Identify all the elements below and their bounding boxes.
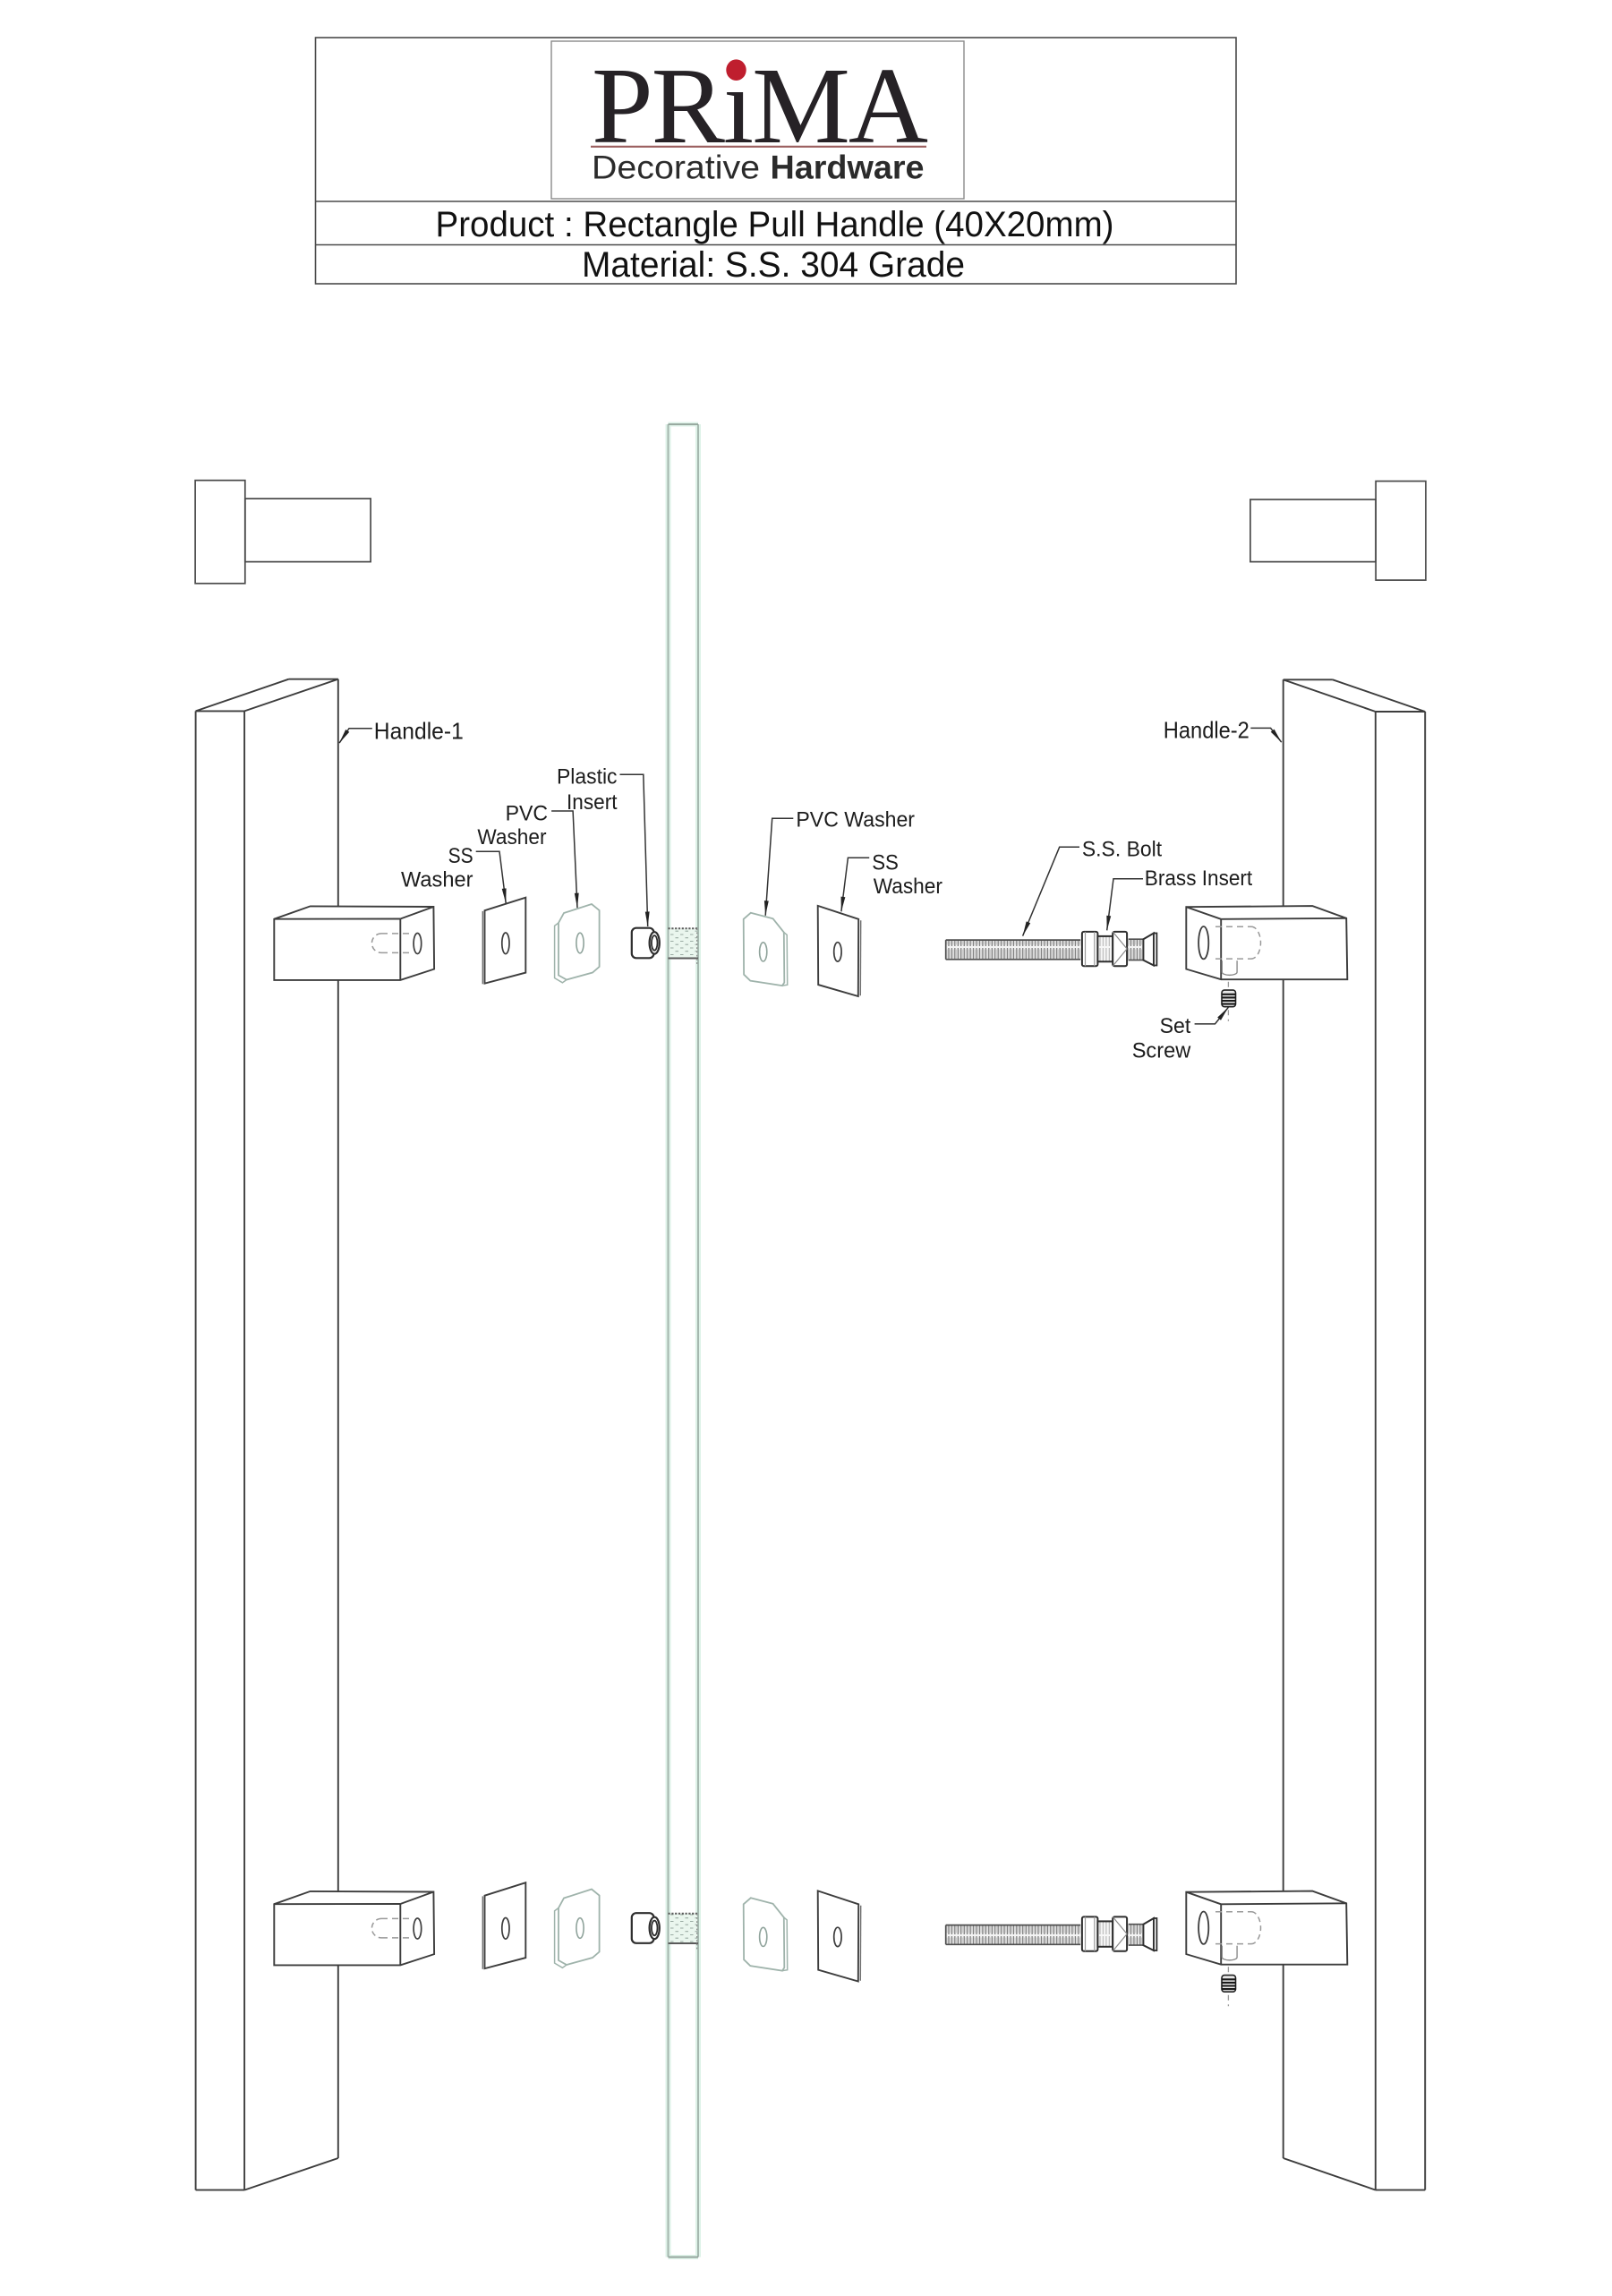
svg-text:Hardware: Hardware [771,149,925,186]
svg-text:Decorative: Decorative [592,149,760,186]
svg-text:Product : Rectangle Pull Handl: Product : Rectangle Pull Handle (40X20mm… [436,205,1114,244]
svg-text:Plastic: Plastic [557,765,618,790]
svg-text:Screw: Screw [1132,1039,1191,1063]
svg-text:PVC: PVC [506,802,549,826]
svg-text:Set: Set [1160,1014,1191,1038]
svg-text:S.S. Bolt: S.S. Bolt [1082,838,1162,862]
svg-text:Washer: Washer [477,825,546,849]
svg-text:Brass Insert: Brass Insert [1145,866,1253,891]
svg-text:Material: S.S. 304 Grade: Material: S.S. 304 Grade [582,245,965,285]
svg-text:Handle-1: Handle-1 [374,718,464,745]
svg-text:Handle-2: Handle-2 [1164,717,1250,744]
svg-text:SS: SS [448,844,473,868]
svg-text:Insert: Insert [567,790,618,815]
svg-text:Washer: Washer [874,875,942,899]
svg-text:SS: SS [872,851,899,875]
svg-text:Washer: Washer [401,868,473,892]
svg-text:PVC Washer: PVC Washer [796,808,915,832]
